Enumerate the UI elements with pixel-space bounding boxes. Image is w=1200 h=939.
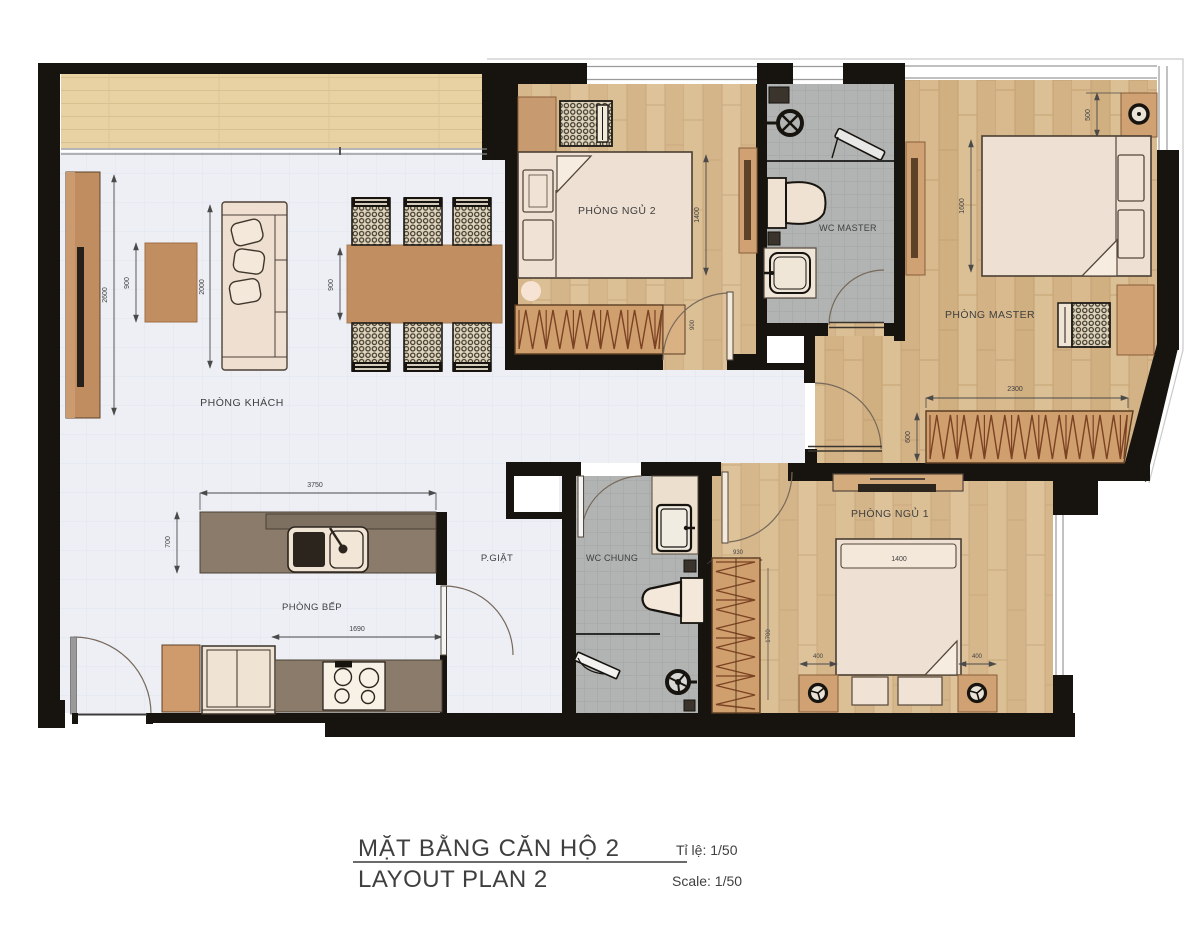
svg-text:2300: 2300	[1007, 386, 1023, 393]
svg-text:PHÒNG BẾP: PHÒNG BẾP	[282, 602, 342, 613]
svg-text:930: 930	[733, 550, 744, 556]
svg-text:PHÒNG NGỦ 2: PHÒNG NGỦ 2	[578, 204, 656, 217]
svg-text:900: 900	[124, 277, 131, 289]
svg-text:Tỉ lệ: 1/50: Tỉ lệ: 1/50	[676, 842, 738, 858]
svg-text:900: 900	[690, 319, 696, 330]
svg-text:LAYOUT PLAN 2: LAYOUT PLAN 2	[358, 866, 548, 893]
svg-text:1690: 1690	[349, 626, 365, 633]
svg-text:2600: 2600	[102, 287, 109, 303]
svg-text:1400: 1400	[891, 556, 907, 563]
svg-text:3750: 3750	[307, 482, 323, 489]
svg-text:WC MASTER: WC MASTER	[819, 223, 877, 233]
svg-text:PHÒNG NGỦ 1: PHÒNG NGỦ 1	[851, 507, 929, 520]
svg-text:1400: 1400	[694, 207, 701, 223]
svg-text:Scale: 1/50: Scale: 1/50	[672, 873, 742, 889]
svg-text:700: 700	[165, 536, 172, 548]
svg-text:PHÒNG KHÁCH: PHÒNG KHÁCH	[200, 396, 284, 409]
svg-text:400: 400	[813, 654, 824, 660]
svg-text:P.GIẶT: P.GIẶT	[481, 553, 513, 564]
svg-text:2000: 2000	[199, 279, 206, 295]
svg-text:WC CHUNG: WC CHUNG	[586, 553, 638, 563]
svg-text:1700: 1700	[766, 629, 772, 643]
svg-text:600: 600	[905, 431, 912, 443]
svg-text:500: 500	[1085, 109, 1092, 121]
svg-text:MẶT BẰNG CĂN HỘ 2: MẶT BẰNG CĂN HỘ 2	[358, 834, 620, 862]
svg-text:400: 400	[972, 654, 983, 660]
svg-text:900: 900	[328, 279, 335, 291]
svg-text:PHÒNG MASTER: PHÒNG MASTER	[945, 308, 1035, 321]
svg-text:1600: 1600	[959, 198, 966, 214]
